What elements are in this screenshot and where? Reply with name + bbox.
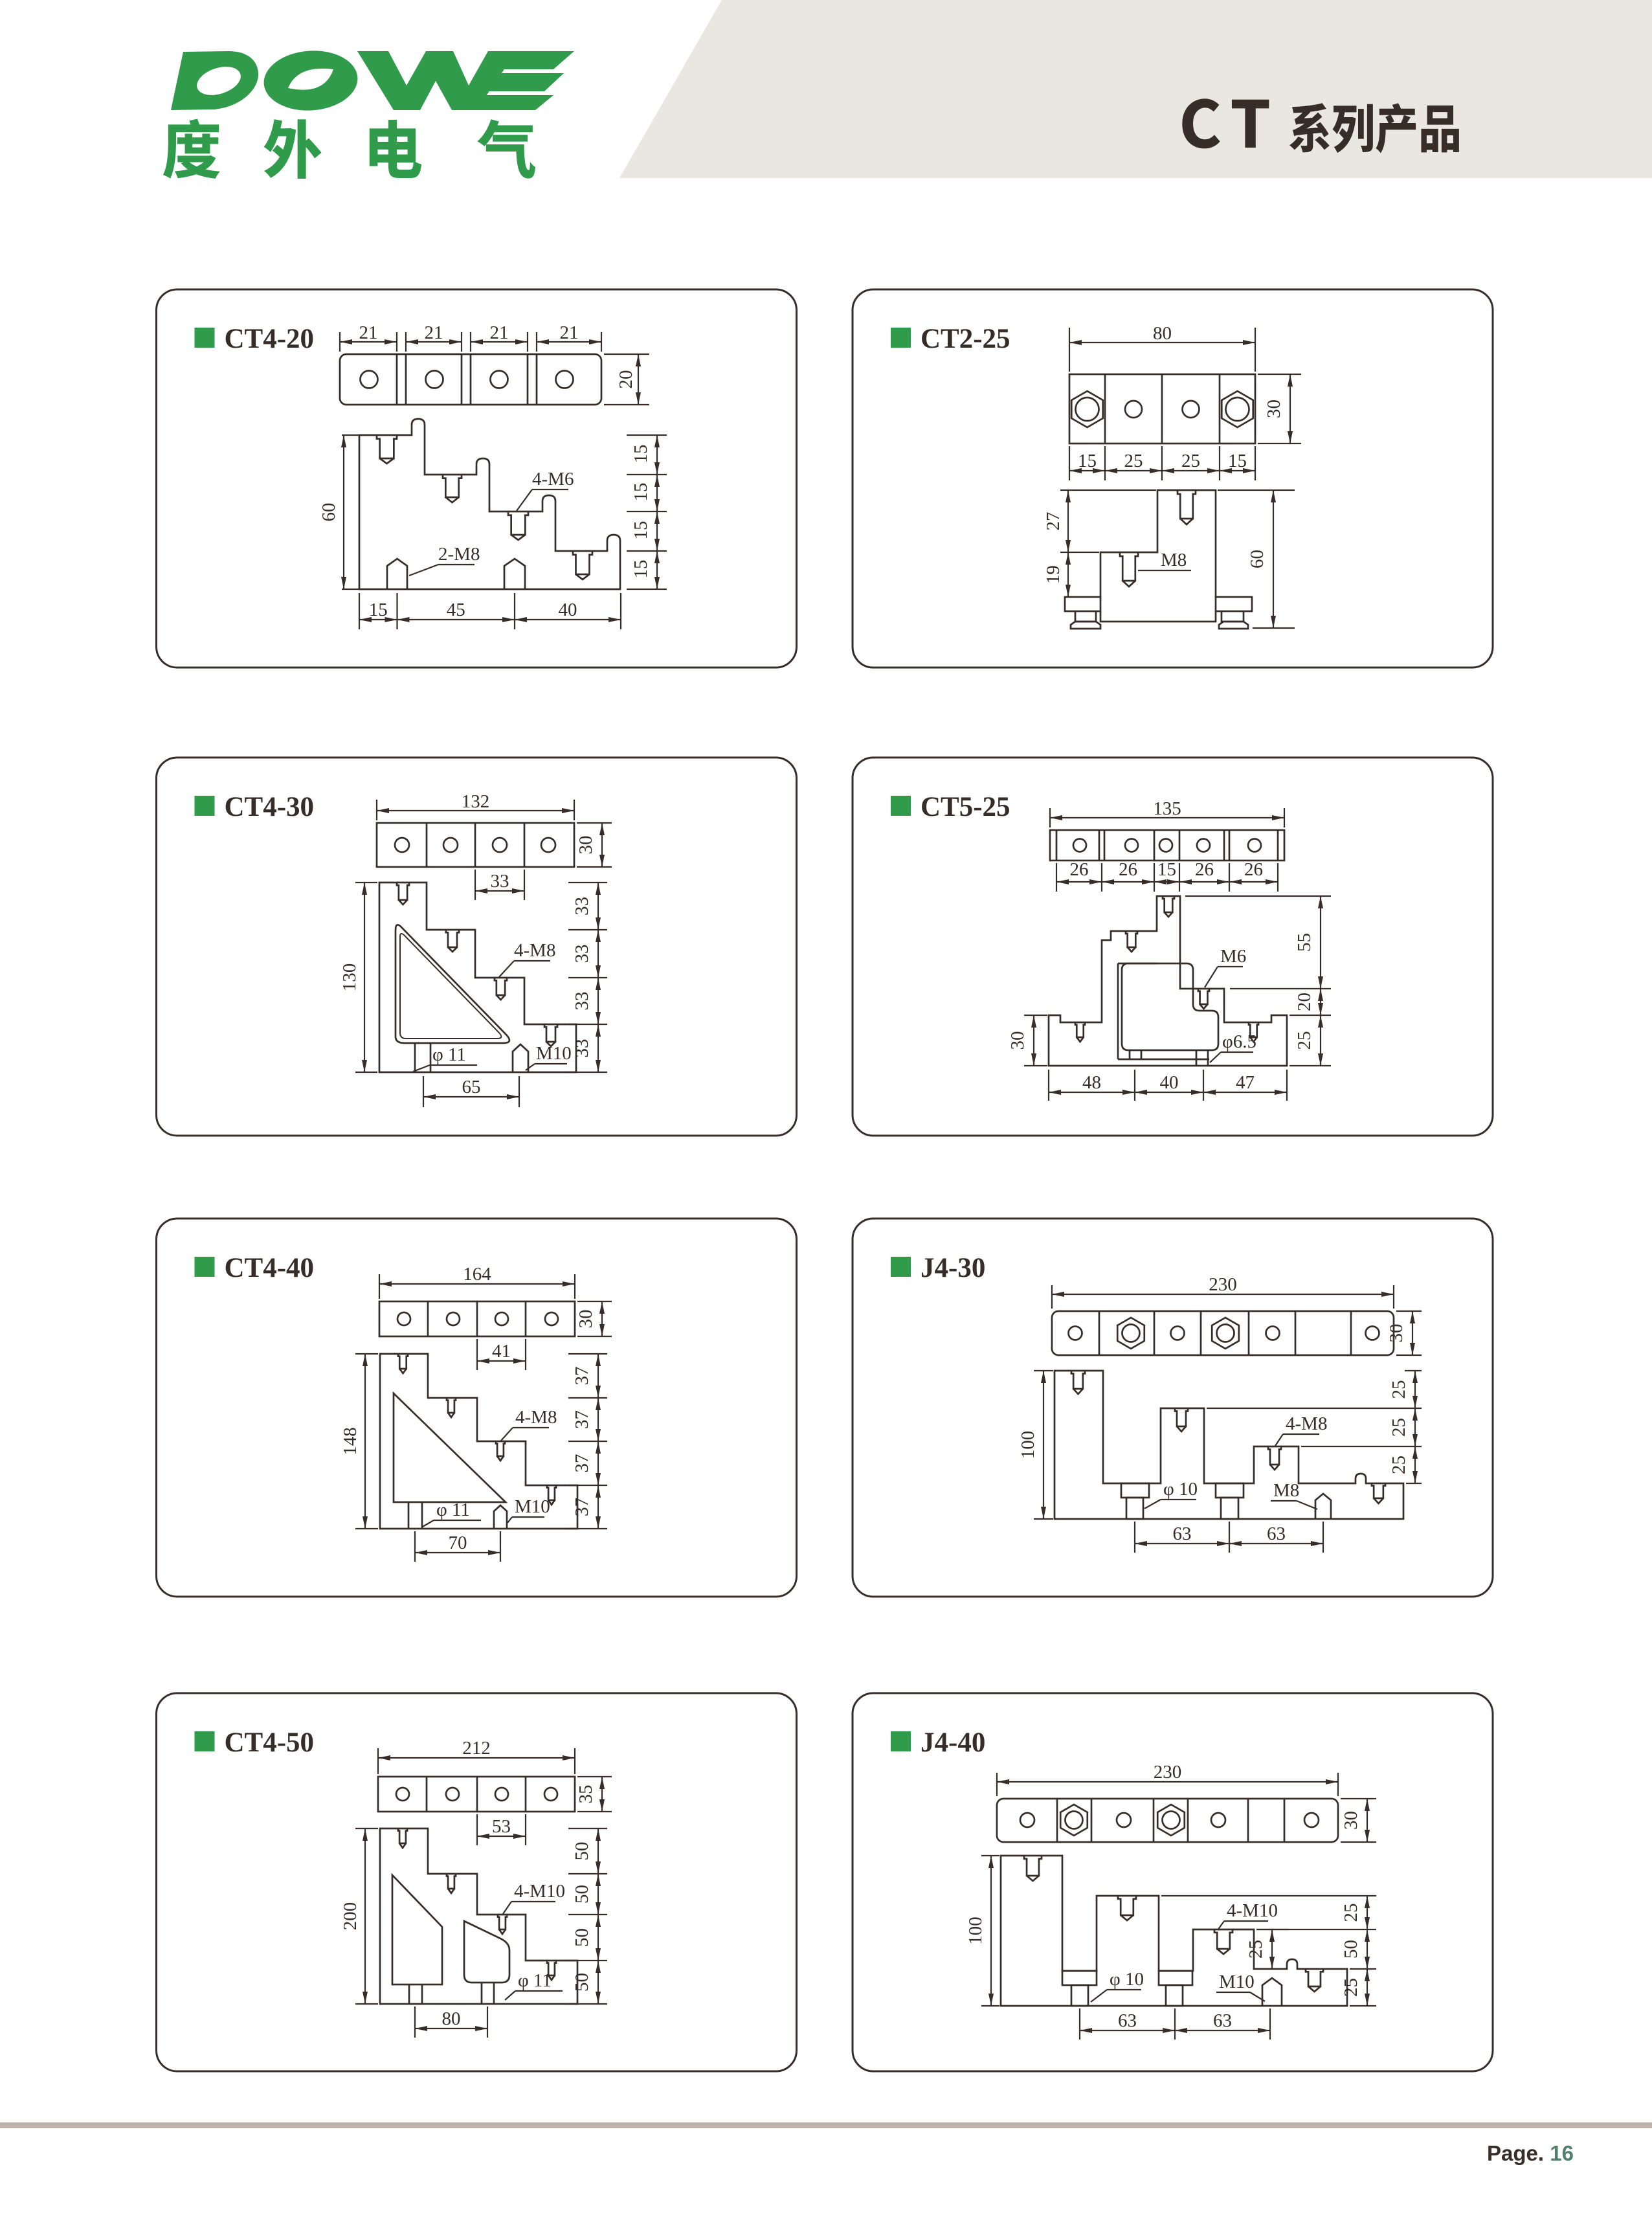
- svg-text:25: 25: [1181, 451, 1200, 471]
- svg-text:15: 15: [631, 445, 651, 464]
- svg-text:230: 230: [1154, 1762, 1182, 1782]
- svg-text:60: 60: [318, 503, 339, 522]
- svg-text:26: 26: [1244, 859, 1263, 880]
- svg-text:80: 80: [1153, 323, 1172, 344]
- svg-text:25: 25: [1294, 1031, 1315, 1050]
- svg-text:148: 148: [340, 1427, 361, 1456]
- svg-text:20: 20: [1294, 993, 1315, 1011]
- svg-text:212: 212: [462, 1738, 491, 1759]
- svg-text:15: 15: [631, 483, 651, 502]
- svg-text:26: 26: [1070, 859, 1089, 880]
- svg-text:15: 15: [1228, 451, 1247, 471]
- svg-text:63: 63: [1173, 1523, 1192, 1544]
- svg-text:25: 25: [1389, 1418, 1409, 1437]
- svg-text:47: 47: [1236, 1072, 1255, 1093]
- svg-text:33: 33: [572, 992, 592, 1011]
- svg-text:25: 25: [1341, 1978, 1361, 1997]
- svg-text:CT4-50: CT4-50: [225, 1727, 315, 1758]
- svg-text:41: 41: [492, 1341, 511, 1362]
- svg-text:20: 20: [616, 370, 636, 389]
- svg-text:100: 100: [965, 1917, 986, 1945]
- svg-text:53: 53: [492, 1816, 511, 1837]
- svg-text:CT4-20: CT4-20: [225, 324, 315, 354]
- svg-text:132: 132: [462, 791, 490, 812]
- svg-text:4-M10: 4-M10: [1227, 1900, 1278, 1921]
- svg-text:80: 80: [442, 2008, 461, 2029]
- svg-text:4-M6: 4-M6: [532, 469, 574, 489]
- svg-text:15: 15: [1078, 451, 1097, 471]
- svg-text:J4-40: J4-40: [921, 1727, 985, 1758]
- svg-text:φ 10: φ 10: [1163, 1479, 1198, 1500]
- svg-text:27: 27: [1043, 512, 1064, 531]
- svg-text:33: 33: [572, 897, 592, 916]
- svg-text:135: 135: [1153, 798, 1181, 819]
- svg-text:CT2-25: CT2-25: [921, 324, 1010, 354]
- svg-text:25: 25: [1245, 1940, 1266, 1959]
- svg-text:30: 30: [1264, 399, 1284, 418]
- svg-text:4-M8: 4-M8: [515, 1407, 557, 1428]
- svg-text:M6: M6: [1220, 946, 1246, 967]
- svg-text:25: 25: [1341, 1904, 1361, 1922]
- svg-text:M8: M8: [1161, 550, 1187, 570]
- svg-text:30: 30: [575, 1310, 596, 1329]
- svg-text:200: 200: [340, 1902, 361, 1931]
- svg-text:25: 25: [1124, 451, 1143, 471]
- svg-text:70: 70: [449, 1533, 467, 1553]
- svg-text:50: 50: [572, 1842, 592, 1861]
- svg-text:37: 37: [572, 1410, 592, 1429]
- svg-text:φ 11: φ 11: [518, 1970, 552, 1991]
- svg-text:25: 25: [1389, 1380, 1409, 1399]
- svg-text:M10: M10: [1219, 1972, 1255, 1992]
- svg-text:50: 50: [1341, 1940, 1361, 1959]
- svg-text:40: 40: [1160, 1072, 1179, 1093]
- svg-text:48: 48: [1082, 1072, 1101, 1093]
- svg-text:130: 130: [339, 963, 360, 992]
- svg-text:63: 63: [1118, 2010, 1137, 2031]
- svg-text:40: 40: [559, 600, 577, 620]
- svg-text:50: 50: [572, 1885, 592, 1904]
- svg-text:2-M8: 2-M8: [438, 544, 480, 565]
- svg-text:37: 37: [572, 1498, 592, 1516]
- svg-text:63: 63: [1213, 2010, 1232, 2031]
- svg-text:Page. 16: Page. 16: [1487, 2141, 1574, 2165]
- svg-text:φ 10: φ 10: [1110, 1969, 1144, 1990]
- svg-text:37: 37: [572, 1454, 592, 1473]
- svg-text:33: 33: [572, 945, 592, 963]
- svg-text:15: 15: [1157, 859, 1176, 880]
- svg-text:63: 63: [1267, 1523, 1286, 1544]
- svg-text:φ 11: φ 11: [432, 1044, 466, 1065]
- svg-text:33: 33: [572, 1039, 592, 1058]
- svg-text:230: 230: [1209, 1274, 1237, 1295]
- svg-text:25: 25: [1389, 1456, 1409, 1474]
- svg-text:M8: M8: [1273, 1480, 1299, 1501]
- svg-text:φ 11: φ 11: [436, 1500, 470, 1520]
- svg-text:M10: M10: [536, 1043, 572, 1064]
- svg-text:50: 50: [572, 1973, 592, 1992]
- svg-text:21: 21: [425, 322, 443, 343]
- svg-text:50: 50: [572, 1928, 592, 1947]
- svg-text:4-M10: 4-M10: [514, 1881, 565, 1902]
- svg-text:30: 30: [575, 836, 596, 855]
- svg-text:30: 30: [1007, 1031, 1028, 1050]
- svg-text:φ6.5: φ6.5: [1222, 1031, 1256, 1052]
- svg-text:J4-30: J4-30: [921, 1253, 985, 1283]
- svg-text:21: 21: [359, 322, 378, 343]
- svg-text:CT5-25: CT5-25: [921, 792, 1010, 822]
- svg-text:15: 15: [631, 521, 651, 540]
- svg-text:33: 33: [491, 871, 509, 892]
- svg-text:CT4-40: CT4-40: [225, 1253, 315, 1283]
- svg-text:26: 26: [1119, 859, 1137, 880]
- svg-text:21: 21: [490, 322, 509, 343]
- svg-text:30: 30: [1386, 1324, 1407, 1343]
- svg-text:45: 45: [447, 600, 465, 620]
- svg-text:21: 21: [560, 322, 579, 343]
- svg-text:15: 15: [631, 560, 651, 579]
- svg-text:30: 30: [1341, 1811, 1361, 1830]
- svg-text:60: 60: [1247, 550, 1267, 568]
- svg-text:100: 100: [1018, 1431, 1038, 1459]
- svg-text:164: 164: [463, 1264, 491, 1285]
- svg-text:65: 65: [462, 1077, 481, 1097]
- svg-text:37: 37: [572, 1367, 592, 1386]
- svg-text:26: 26: [1195, 859, 1214, 880]
- svg-text:19: 19: [1043, 565, 1064, 584]
- svg-text:CT4-30: CT4-30: [225, 792, 315, 822]
- svg-text:4-M8: 4-M8: [514, 940, 555, 961]
- svg-text:15: 15: [369, 600, 388, 620]
- svg-text:55: 55: [1294, 933, 1315, 952]
- svg-text:35: 35: [575, 1785, 596, 1804]
- svg-text:M10: M10: [515, 1496, 550, 1517]
- svg-text:4-M8: 4-M8: [1286, 1413, 1327, 1434]
